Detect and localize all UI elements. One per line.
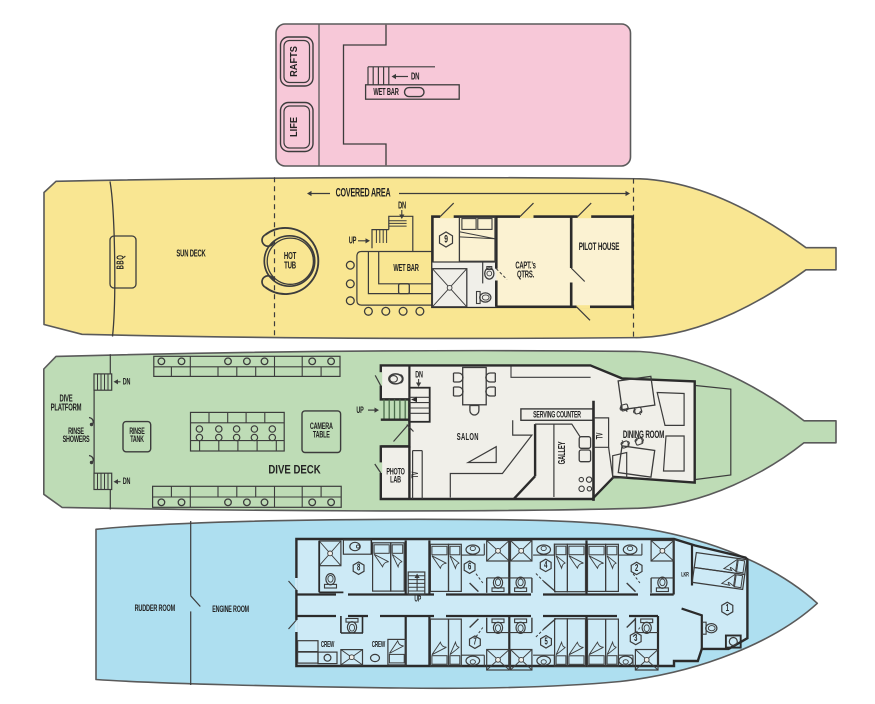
svg-text:CREW: CREW xyxy=(321,641,335,650)
svg-text:TV: TV xyxy=(594,433,605,440)
svg-text:RAFTS: RAFTS xyxy=(288,46,300,77)
svg-text:WET BAR: WET BAR xyxy=(373,87,399,98)
svg-text:QTRS.: QTRS. xyxy=(517,269,534,280)
svg-text:BBQ: BBQ xyxy=(115,255,126,270)
svg-text:ENGINE ROOM: ENGINE ROOM xyxy=(212,603,249,614)
svg-text:CREW: CREW xyxy=(372,641,386,650)
svg-text:TV: TV xyxy=(409,472,420,479)
svg-text:1: 1 xyxy=(726,603,730,614)
svg-text:DIVE DECK: DIVE DECK xyxy=(268,464,320,477)
svg-text:DN: DN xyxy=(415,369,423,380)
svg-text:LIFE: LIFE xyxy=(288,117,300,137)
svg-text:WET BAR: WET BAR xyxy=(393,262,419,273)
svg-text:SUN DECK: SUN DECK xyxy=(176,248,205,259)
svg-text:LAB: LAB xyxy=(390,474,401,485)
svg-text:6: 6 xyxy=(468,561,472,572)
svg-text:UP: UP xyxy=(414,595,421,604)
svg-text:DINING ROOM: DINING ROOM xyxy=(623,428,664,440)
svg-text:UP: UP xyxy=(349,235,357,246)
svg-text:LKR: LKR xyxy=(681,572,689,579)
svg-text:UP: UP xyxy=(356,404,363,415)
svg-text:RUDDER ROOM: RUDDER ROOM xyxy=(135,602,175,613)
svg-text:4: 4 xyxy=(544,559,548,570)
svg-text:7: 7 xyxy=(473,636,477,647)
svg-text:SALON: SALON xyxy=(457,431,479,442)
svg-text:TABLE: TABLE xyxy=(313,429,330,440)
svg-text:SHOWERS: SHOWERS xyxy=(63,433,90,444)
svg-text:DN: DN xyxy=(398,200,406,211)
svg-text:TUB: TUB xyxy=(284,259,296,271)
svg-text:SERVING COUNTER: SERVING COUNTER xyxy=(533,409,581,420)
svg-text:3: 3 xyxy=(634,632,638,643)
svg-text:DN: DN xyxy=(411,70,419,82)
svg-text:PLATFORM: PLATFORM xyxy=(51,402,82,413)
svg-text:DN: DN xyxy=(123,476,131,487)
svg-text:9: 9 xyxy=(444,233,448,245)
svg-text:5: 5 xyxy=(544,636,548,647)
svg-text:DN: DN xyxy=(123,376,131,387)
svg-text:TANK: TANK xyxy=(130,433,144,444)
svg-text:8: 8 xyxy=(357,562,361,573)
svg-text:2: 2 xyxy=(635,562,639,573)
svg-text:PILOT HOUSE: PILOT HOUSE xyxy=(579,240,620,252)
svg-text:COVERED AREA: COVERED AREA xyxy=(336,187,391,200)
svg-text:GALLEY: GALLEY xyxy=(556,441,567,464)
